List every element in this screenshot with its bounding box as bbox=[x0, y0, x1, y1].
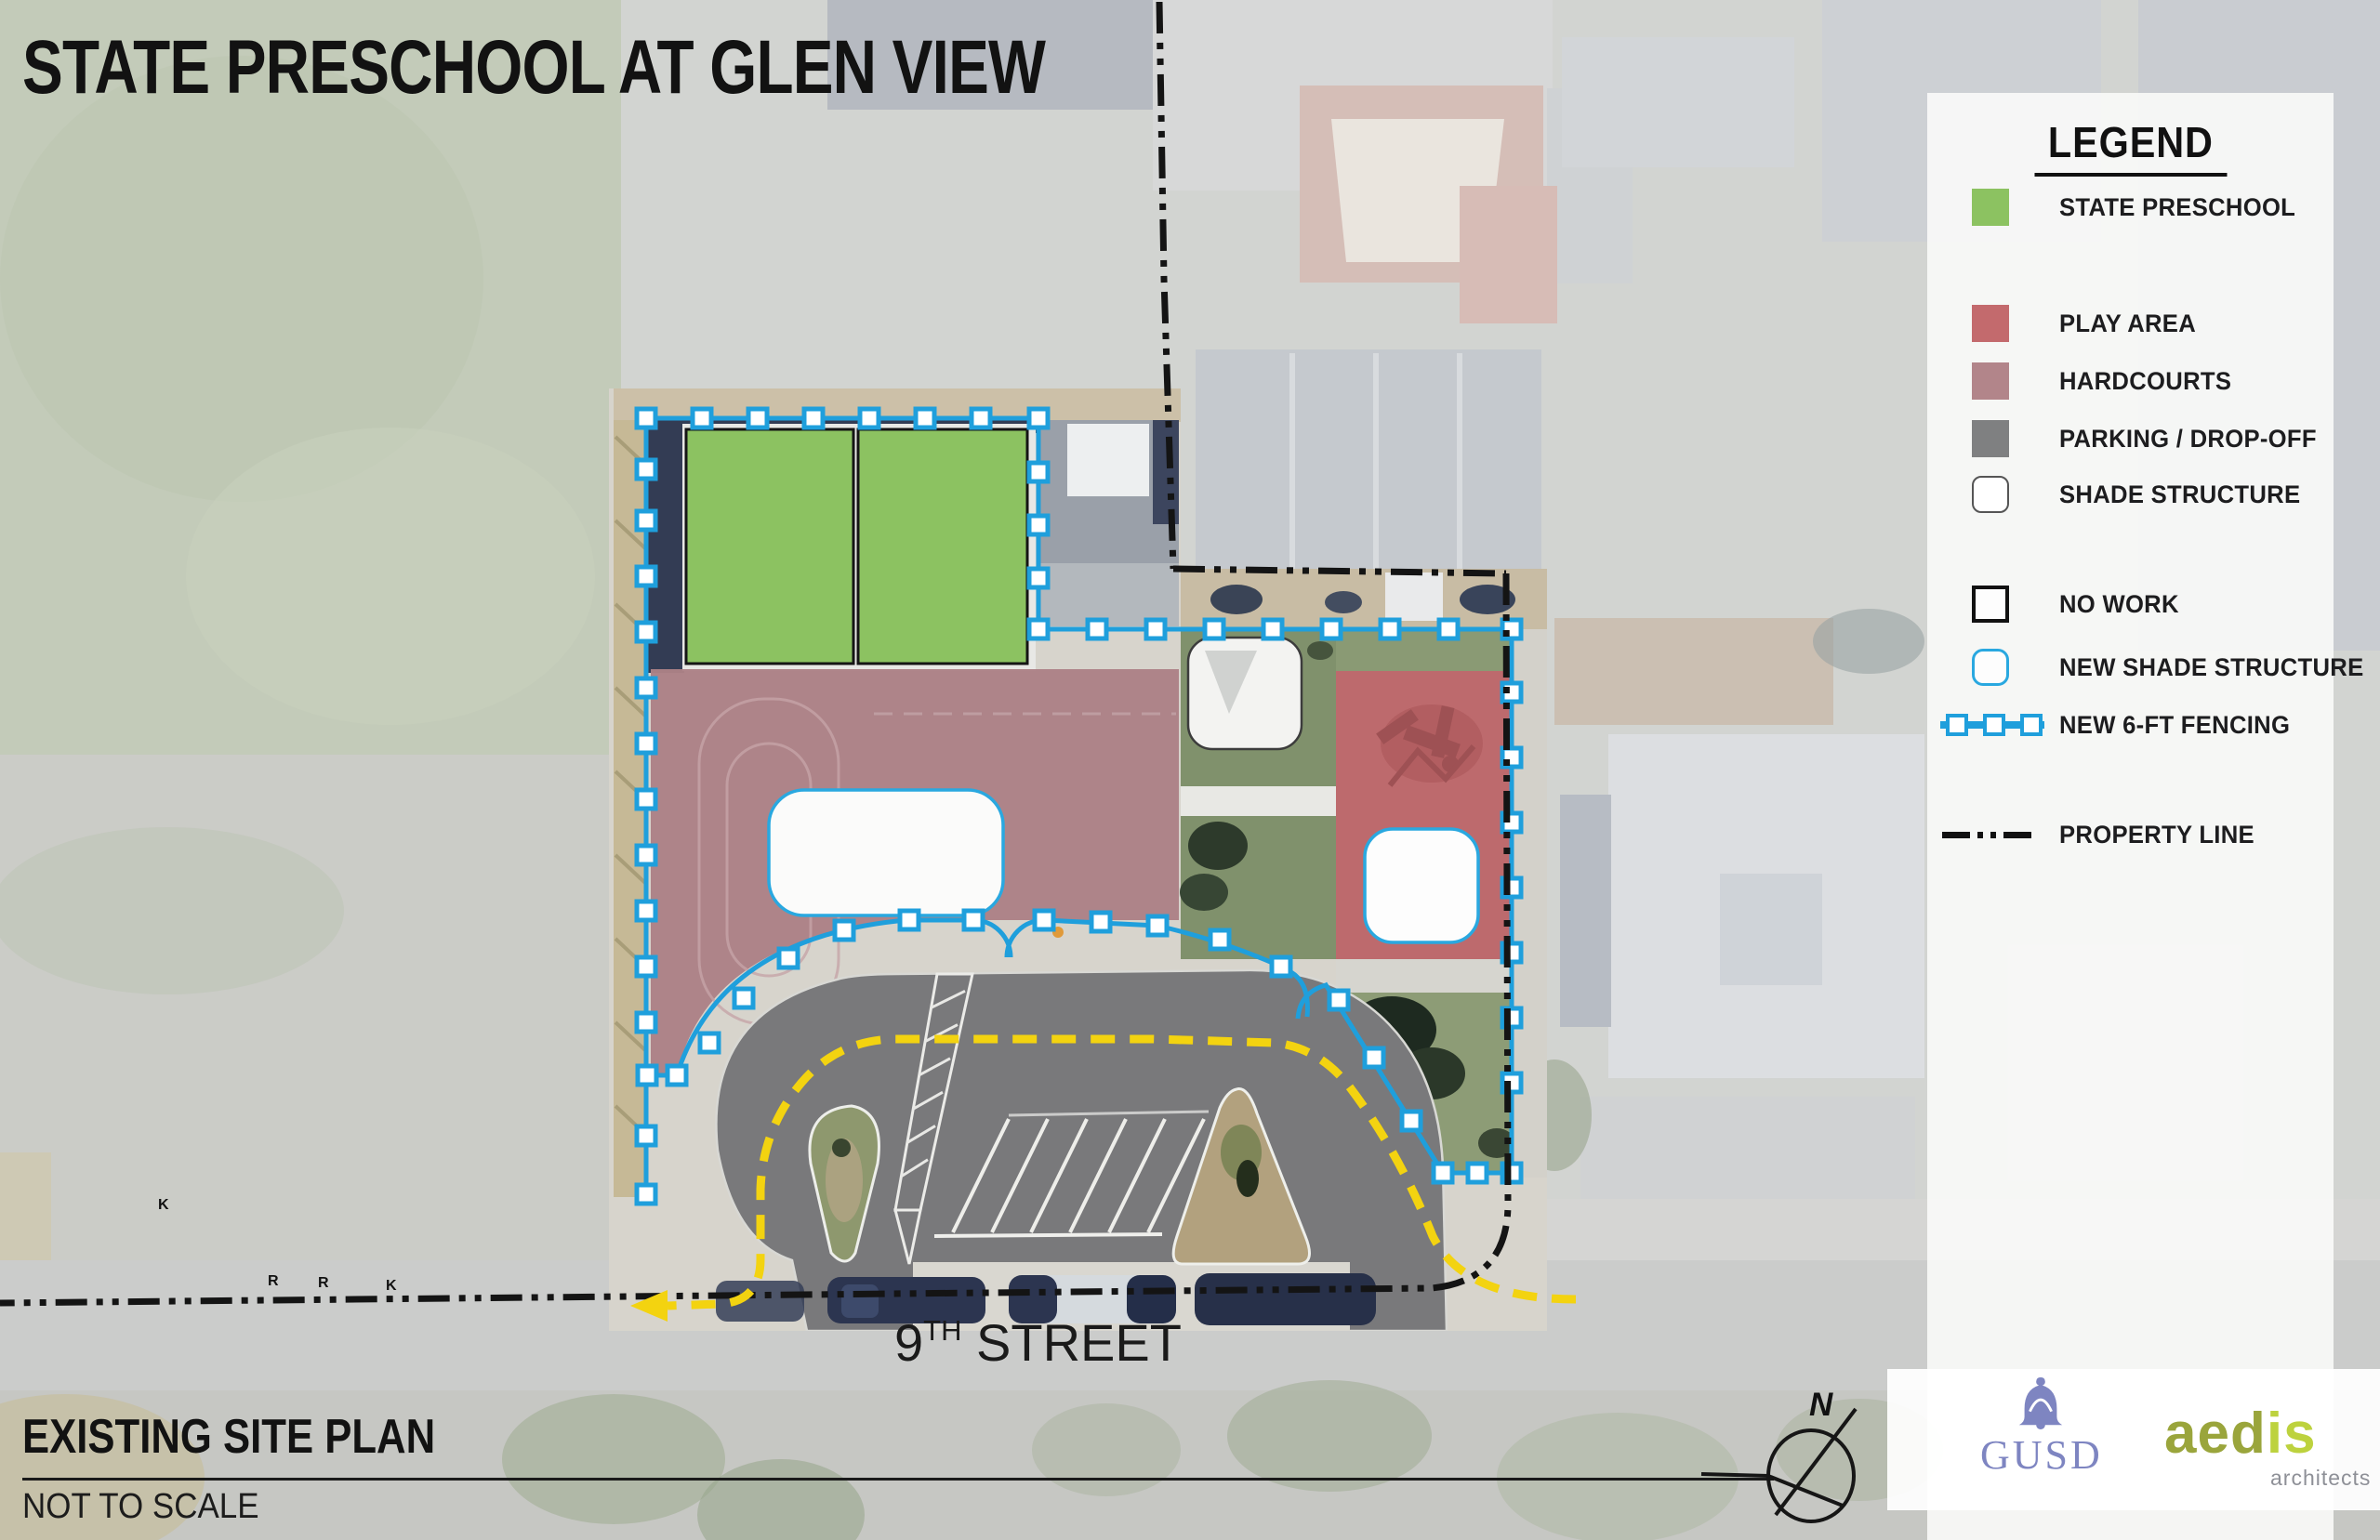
new-shade-structure-hardcourt bbox=[769, 790, 1003, 915]
survey-mark: K bbox=[386, 1278, 397, 1295]
survey-mark: R bbox=[268, 1273, 279, 1290]
legend-item-new-fencing: NEW 6-FT FENCING bbox=[1927, 706, 2334, 751]
scale-note: NOT TO SCALE bbox=[22, 1487, 259, 1527]
aedis-logo: aedis bbox=[2164, 1401, 2317, 1467]
view-title: EXISTING SITE PLAN bbox=[22, 1409, 435, 1465]
street-ordinal: TH bbox=[923, 1314, 961, 1347]
existing-building-no-work bbox=[1039, 420, 1179, 626]
street-label: 9TH STREET bbox=[894, 1312, 1182, 1373]
mauve-square-swatch bbox=[1972, 362, 2009, 400]
existing-shade-structure bbox=[1188, 638, 1302, 749]
blue-fence-line-swatch bbox=[1940, 721, 2044, 729]
new-shade-structure-play-area bbox=[1365, 829, 1478, 942]
gusd-wordmark: GUSD bbox=[1980, 1437, 2101, 1474]
green-square-swatch bbox=[1972, 189, 2009, 226]
legend-item-parking: PARKING / DROP-OFF bbox=[1927, 420, 2334, 465]
legend-item-no-work: NO WORK bbox=[1927, 586, 2334, 630]
logo-strip: GUSD aedis architects bbox=[1887, 1369, 2380, 1510]
aedis-subtext: architects bbox=[2270, 1466, 2371, 1491]
parking-dropoff-lot bbox=[716, 927, 1447, 1333]
site-plan-sheet: STATE PRESCHOOL AT GLEN VIEW 9TH STREET … bbox=[0, 0, 2380, 1540]
legend-item-hardcourts: HARDCOURTS bbox=[1927, 362, 2334, 407]
street-number: 9 bbox=[894, 1313, 923, 1372]
street-name: STREET bbox=[961, 1313, 1181, 1372]
legend-panel: LEGEND STATE PRESCHOOL PLAY AREA HARDCOU… bbox=[1927, 93, 2334, 1540]
state-preschool-building-2 bbox=[858, 429, 1027, 664]
legend-item-new-shade-structure: NEW SHADE STRUCTURE bbox=[1927, 649, 2334, 693]
north-label: N bbox=[1809, 1387, 1832, 1424]
gusd-bell-icon bbox=[2014, 1375, 2068, 1432]
white-rounded-swatch bbox=[1972, 476, 2009, 513]
legend-item-property-line: PROPERTY LINE bbox=[1927, 816, 2334, 861]
legend-item-shade-structure: SHADE STRUCTURE bbox=[1927, 476, 2334, 520]
legend-item-play-area: PLAY AREA bbox=[1927, 305, 2334, 349]
gray-square-swatch bbox=[1972, 420, 2009, 457]
blue-outline-rounded-swatch bbox=[1972, 649, 2009, 686]
red-square-swatch bbox=[1972, 305, 2009, 342]
survey-mark: K bbox=[158, 1197, 169, 1214]
dash-dot-line-swatch bbox=[1942, 832, 2039, 838]
dirt-yard bbox=[1181, 569, 1547, 629]
black-outline-swatch bbox=[1972, 586, 2009, 623]
sheet-title: STATE PRESCHOOL AT GLEN VIEW bbox=[22, 24, 1045, 112]
legend-item-state-preschool: STATE PRESCHOOL bbox=[1927, 189, 2334, 233]
state-preschool-building-1 bbox=[686, 429, 853, 664]
legend-heading: LEGEND bbox=[2034, 117, 2227, 177]
gusd-logo: GUSD bbox=[1980, 1375, 2101, 1474]
survey-mark: R bbox=[318, 1275, 329, 1292]
title-rule bbox=[22, 1478, 1774, 1481]
